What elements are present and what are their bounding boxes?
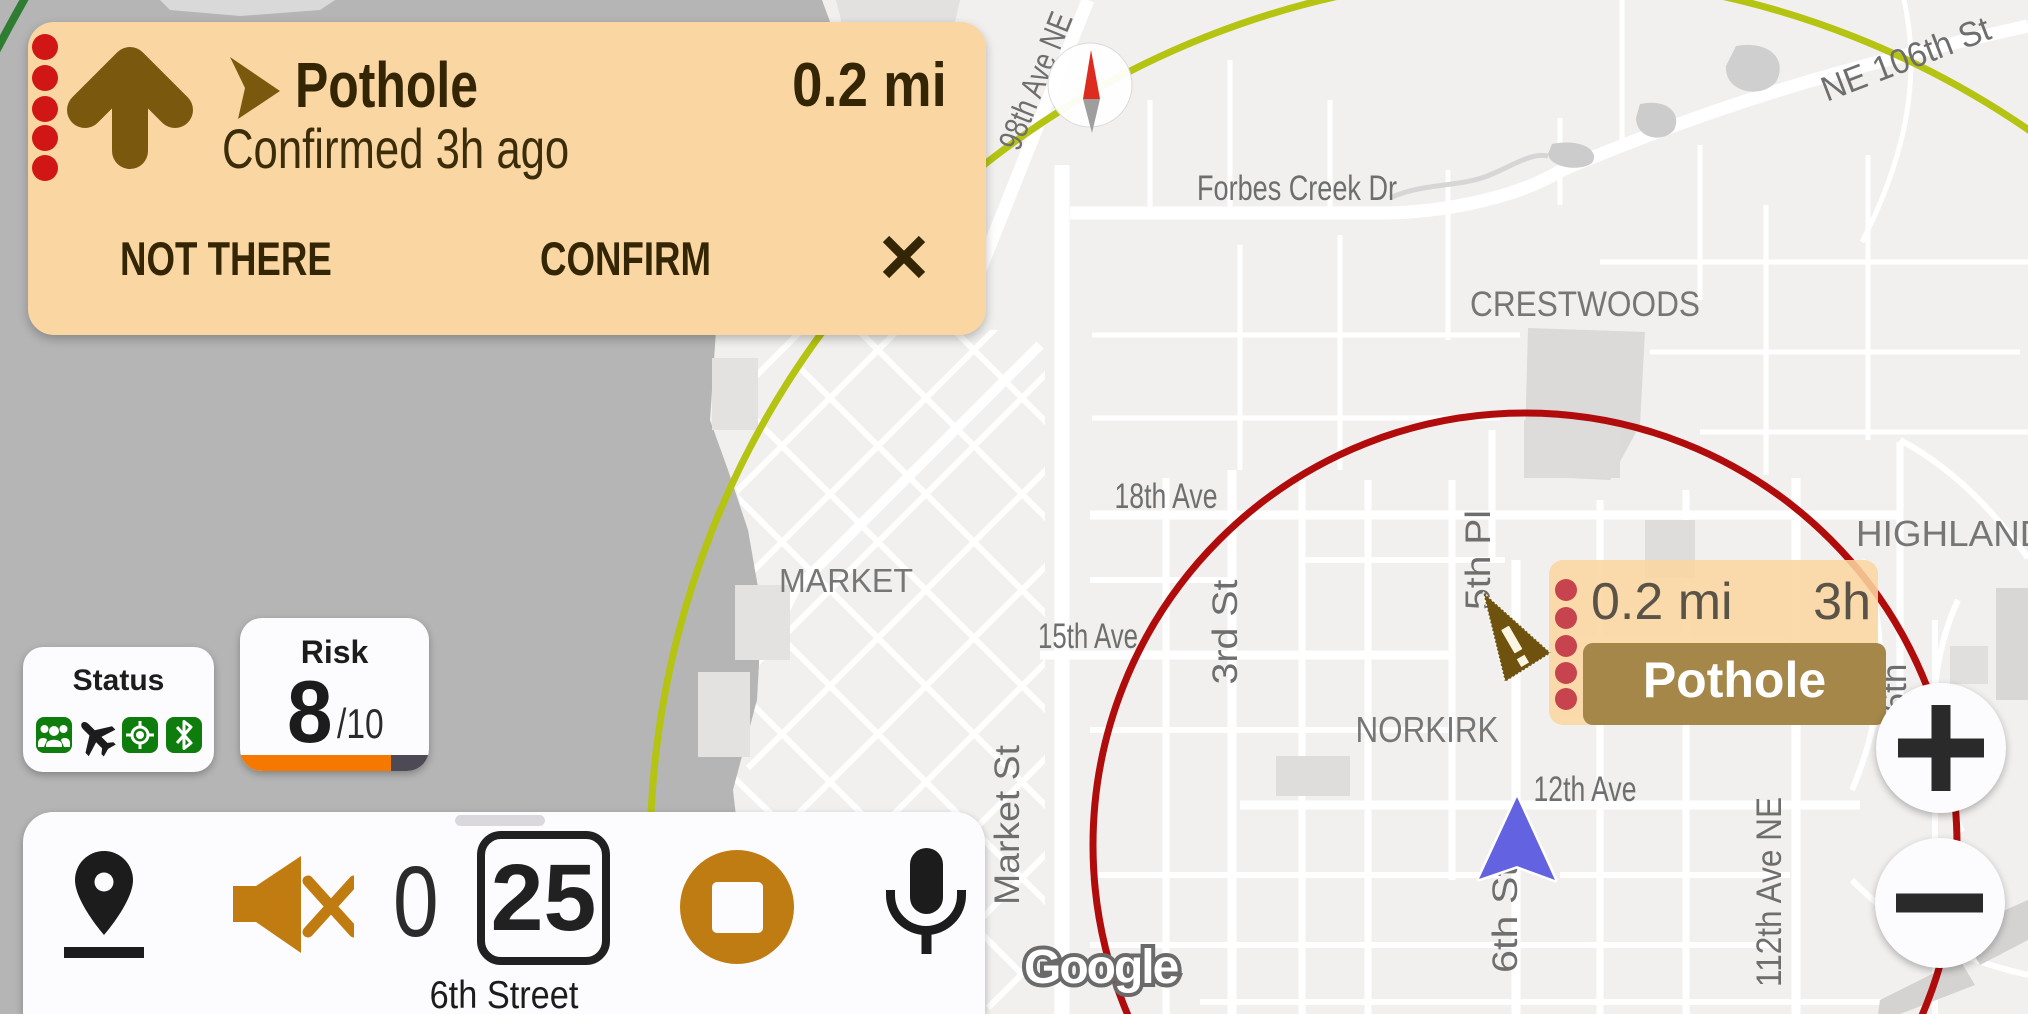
svg-text:6th St: 6th St (1486, 865, 1525, 973)
svg-text:112th Ave NE: 112th Ave NE (1750, 797, 1789, 987)
svg-text:3rd St: 3rd St (1206, 579, 1245, 684)
svg-text:NORKIRK: NORKIRK (1356, 709, 1499, 750)
svg-text:HIGHLANDS: HIGHLANDS (1856, 513, 2028, 554)
svg-text:Market St: Market St (988, 745, 1027, 905)
svg-text:18th Ave: 18th Ave (1115, 477, 1218, 516)
svg-text:15th Ave: 15th Ave (1038, 617, 1138, 656)
svg-text:12th Ave: 12th Ave (1534, 770, 1637, 809)
svg-text:Google: Google (1024, 941, 1179, 994)
svg-text:Forbes Creek Dr: Forbes Creek Dr (1197, 169, 1397, 208)
svg-text:CRESTWOODS: CRESTWOODS (1470, 285, 1700, 324)
svg-text:MARKET: MARKET (779, 562, 913, 599)
